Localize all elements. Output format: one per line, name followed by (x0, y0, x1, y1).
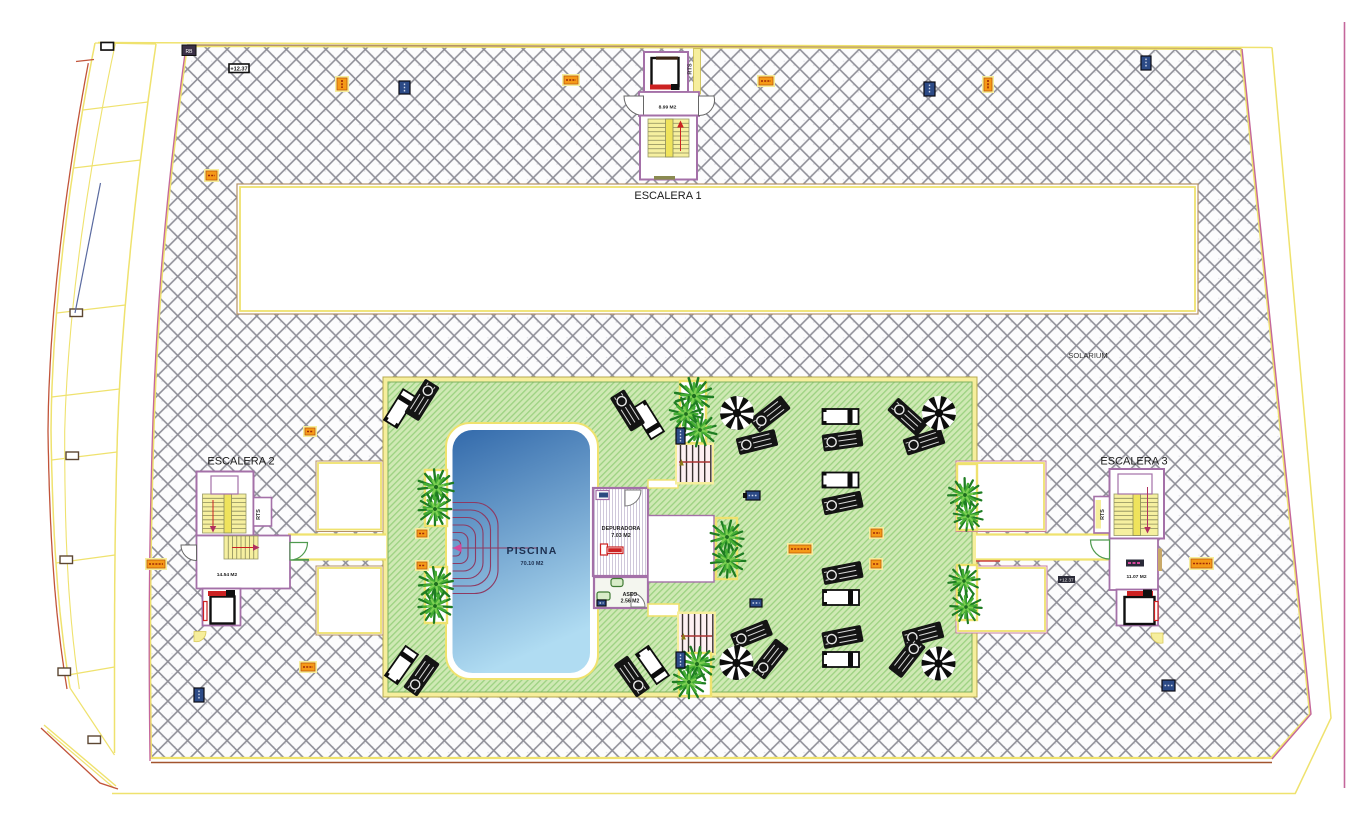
svg-text:RTS: RTS (256, 509, 262, 520)
svg-text:8.99 M2: 8.99 M2 (659, 105, 677, 111)
svg-text:RTS: RTS (1100, 509, 1106, 520)
svg-text:DEPURADORA: DEPURADORA (602, 526, 641, 532)
svg-text:ASEO: ASEO (623, 592, 638, 598)
svg-text:70.10 M2: 70.10 M2 (521, 561, 544, 567)
svg-text:2.56 M2: 2.56 M2 (621, 599, 640, 605)
svg-text:RTS: RTS (688, 63, 694, 74)
svg-text:ESCALERA 1: ESCALERA 1 (634, 190, 701, 202)
svg-text:+12.37: +12.37 (1059, 578, 1074, 583)
svg-text:PISCINA: PISCINA (507, 545, 558, 557)
svg-text:11.07 M2: 11.07 M2 (1126, 574, 1146, 580)
svg-text:14.54 M2: 14.54 M2 (217, 572, 238, 578)
svg-text:ESCALERA 2: ESCALERA 2 (207, 456, 274, 468)
svg-text:7.03 M2: 7.03 M2 (611, 533, 630, 539)
svg-text:ESCALERA 3: ESCALERA 3 (1100, 456, 1167, 468)
svg-text:RB: RB (186, 49, 194, 55)
svg-text:+12.37: +12.37 (230, 67, 247, 73)
svg-text:SOLARIUM: SOLARIUM (1068, 351, 1107, 360)
